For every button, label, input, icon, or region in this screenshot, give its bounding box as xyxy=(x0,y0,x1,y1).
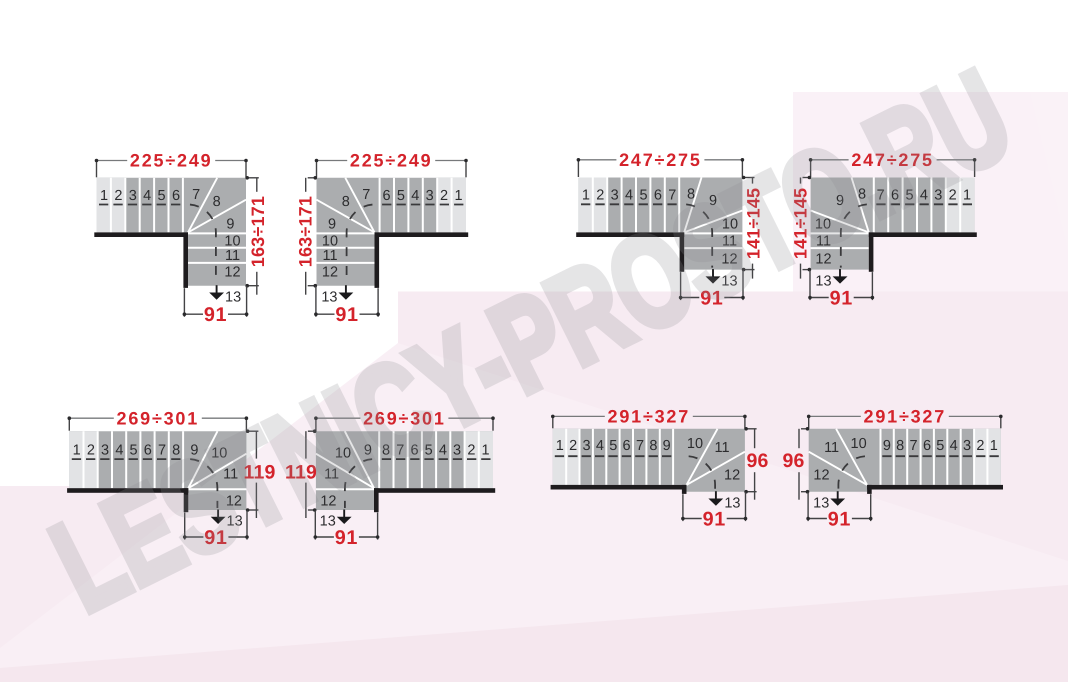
svg-text:11: 11 xyxy=(225,248,240,264)
svg-text:91: 91 xyxy=(204,304,227,326)
svg-text:1: 1 xyxy=(990,438,998,454)
svg-text:7: 7 xyxy=(636,438,644,454)
svg-text:13: 13 xyxy=(724,495,740,511)
svg-text:2: 2 xyxy=(976,438,984,454)
svg-text:291÷327: 291÷327 xyxy=(608,407,691,427)
svg-text:3: 3 xyxy=(129,188,137,204)
svg-text:4: 4 xyxy=(143,188,151,204)
svg-text:5: 5 xyxy=(397,188,405,204)
svg-text:6: 6 xyxy=(382,188,390,204)
svg-text:4: 4 xyxy=(115,443,123,459)
svg-text:6: 6 xyxy=(923,438,931,454)
svg-text:9: 9 xyxy=(226,217,234,233)
svg-text:11: 11 xyxy=(322,248,337,264)
svg-text:163÷171: 163÷171 xyxy=(295,196,315,267)
svg-text:3: 3 xyxy=(101,443,109,459)
svg-text:1: 1 xyxy=(100,188,108,204)
svg-text:10: 10 xyxy=(224,233,240,249)
svg-text:2: 2 xyxy=(569,438,577,454)
svg-text:1: 1 xyxy=(582,188,590,204)
svg-text:4: 4 xyxy=(411,188,419,204)
svg-text:8: 8 xyxy=(649,438,657,454)
svg-text:9: 9 xyxy=(328,217,336,233)
svg-text:225÷249: 225÷249 xyxy=(130,151,213,171)
svg-text:11: 11 xyxy=(824,440,839,456)
svg-text:3: 3 xyxy=(426,188,434,204)
svg-text:9: 9 xyxy=(663,438,671,454)
svg-text:6: 6 xyxy=(172,188,180,204)
svg-text:4: 4 xyxy=(596,438,604,454)
svg-text:12: 12 xyxy=(724,467,740,483)
svg-text:10: 10 xyxy=(322,233,338,249)
svg-text:4: 4 xyxy=(950,438,958,454)
svg-text:7: 7 xyxy=(362,187,370,203)
svg-text:10: 10 xyxy=(687,436,703,452)
svg-text:1: 1 xyxy=(73,443,81,459)
svg-text:96: 96 xyxy=(746,450,768,472)
svg-text:5: 5 xyxy=(158,188,166,204)
svg-text:4: 4 xyxy=(625,188,633,204)
svg-text:291÷327: 291÷327 xyxy=(864,407,947,427)
svg-text:13: 13 xyxy=(225,289,241,305)
svg-text:2: 2 xyxy=(440,188,448,204)
svg-text:2: 2 xyxy=(596,188,604,204)
svg-text:5: 5 xyxy=(936,438,944,454)
svg-text:163÷171: 163÷171 xyxy=(248,196,268,267)
svg-text:8: 8 xyxy=(213,194,221,210)
svg-text:96: 96 xyxy=(782,450,804,472)
svg-text:1: 1 xyxy=(454,188,462,204)
svg-text:269÷301: 269÷301 xyxy=(117,408,200,428)
svg-text:9: 9 xyxy=(883,438,891,454)
svg-text:91: 91 xyxy=(830,288,853,310)
svg-text:7: 7 xyxy=(192,187,200,203)
svg-text:10: 10 xyxy=(851,436,867,452)
svg-text:8: 8 xyxy=(896,438,904,454)
svg-text:5: 5 xyxy=(609,438,617,454)
svg-text:11: 11 xyxy=(714,440,729,456)
svg-text:91: 91 xyxy=(335,304,358,326)
svg-text:3: 3 xyxy=(963,438,971,454)
svg-text:12: 12 xyxy=(813,467,829,483)
svg-text:3: 3 xyxy=(611,188,619,204)
svg-text:8: 8 xyxy=(342,194,350,210)
svg-text:91: 91 xyxy=(335,527,358,549)
svg-text:13: 13 xyxy=(321,289,337,305)
svg-text:12: 12 xyxy=(322,264,338,280)
svg-text:2: 2 xyxy=(87,443,95,459)
svg-text:1: 1 xyxy=(556,438,564,454)
svg-text:91: 91 xyxy=(828,509,851,531)
svg-text:247÷275: 247÷275 xyxy=(619,150,702,170)
svg-text:91: 91 xyxy=(703,509,726,531)
svg-text:7: 7 xyxy=(910,438,918,454)
svg-text:225÷249: 225÷249 xyxy=(350,151,433,171)
svg-text:12: 12 xyxy=(224,264,240,280)
svg-text:2: 2 xyxy=(114,188,122,204)
svg-text:6: 6 xyxy=(623,438,631,454)
svg-text:3: 3 xyxy=(582,438,590,454)
